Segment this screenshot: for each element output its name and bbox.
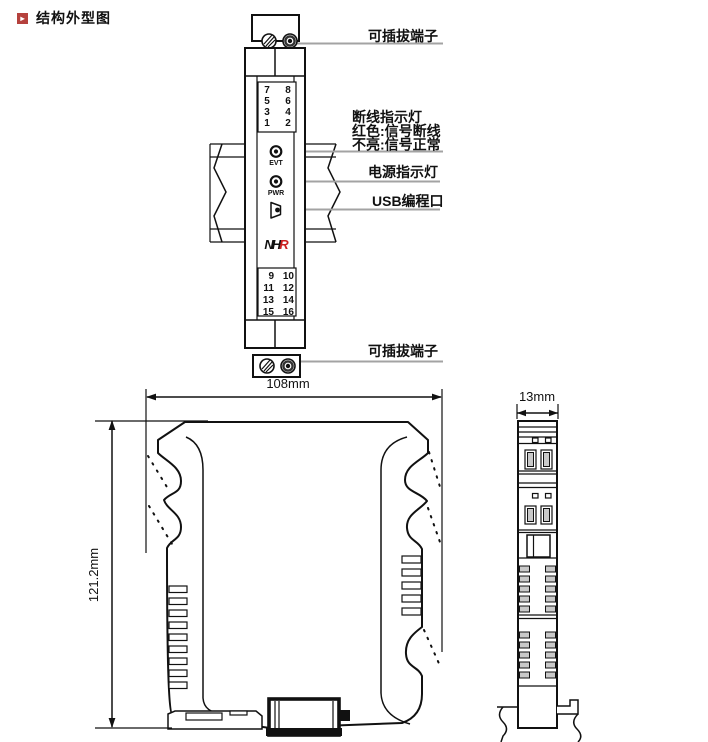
module-front-view: 7 8 5 6 3 4 1 2 EVT PWR bbox=[245, 15, 305, 377]
bottom-terminal-number-panel: 9 10 11 12 13 14 15 16 bbox=[258, 268, 296, 318]
rail-break-zigzag bbox=[214, 144, 226, 242]
pwr-led-label: PWR bbox=[268, 190, 284, 197]
dim-height-label: 121.2mm bbox=[86, 548, 101, 602]
usb-port-icon bbox=[271, 203, 281, 219]
bottom-connector bbox=[266, 699, 350, 736]
profile-usb-opening bbox=[527, 535, 550, 557]
terminal-number: 1 bbox=[264, 118, 270, 129]
rail-clip-slider bbox=[168, 711, 262, 729]
terminal-number: 9 bbox=[268, 271, 274, 282]
annotation-break-indicator-off: 不亮:信号正常 bbox=[352, 137, 441, 153]
terminal-number: 13 bbox=[263, 295, 275, 306]
terminal-number: 3 bbox=[264, 107, 270, 118]
vent-slots-left bbox=[169, 586, 187, 689]
din-rail-right bbox=[305, 144, 340, 242]
screw-icon bbox=[262, 34, 276, 48]
terminal-number: 4 bbox=[285, 107, 291, 118]
dim-depth-label: 13mm bbox=[519, 389, 555, 404]
terminal-number: 12 bbox=[283, 283, 295, 294]
annotation-labels: 可插拔端子 断线指示灯 红色:信号断线 不亮:信号正常 电源指示灯 USB编程口… bbox=[352, 28, 444, 359]
terminal-number: 6 bbox=[285, 96, 291, 107]
terminal-number: 5 bbox=[264, 96, 270, 107]
terminal-number: 7 bbox=[264, 85, 270, 96]
annotation-top-terminal: 可插拔端子 bbox=[368, 28, 438, 44]
housing-outline bbox=[158, 422, 428, 728]
screw-icon bbox=[283, 34, 297, 48]
nhr-logo: NHR bbox=[264, 237, 289, 252]
terminal-number: 8 bbox=[285, 85, 291, 96]
terminal-number: 15 bbox=[263, 307, 275, 318]
annotation-bottom-terminal: 可插拔端子 bbox=[368, 343, 438, 359]
bottom-terminal-block bbox=[253, 355, 300, 377]
din-rail-left bbox=[210, 144, 245, 242]
screw-icon bbox=[281, 359, 295, 373]
evt-led-label: EVT bbox=[269, 160, 283, 167]
annotation-usb-port: USB编程口 bbox=[372, 193, 444, 209]
top-terminal-block bbox=[252, 15, 299, 48]
top-terminal-number-panel: 7 8 5 6 3 4 1 2 bbox=[258, 82, 296, 132]
terminal-number: 16 bbox=[283, 307, 295, 318]
housing-profile-view: 13mm bbox=[497, 389, 581, 742]
rail-break-zigzag bbox=[328, 144, 340, 242]
structure-diagram: 7 8 5 6 3 4 1 2 EVT PWR bbox=[0, 0, 708, 742]
screw-icon bbox=[260, 359, 274, 373]
terminal-number: 10 bbox=[283, 271, 295, 282]
housing-side-view bbox=[148, 422, 441, 736]
terminal-number: 14 bbox=[283, 295, 295, 306]
structure-outline-page: ▸ 结构外型图 bbox=[0, 0, 708, 742]
terminal-number: 2 bbox=[285, 118, 291, 129]
annotation-power-indicator: 电源指示灯 bbox=[368, 164, 438, 180]
dimension-depth bbox=[517, 404, 558, 419]
terminal-number: 11 bbox=[263, 283, 274, 294]
dim-width-label: 108mm bbox=[266, 376, 309, 391]
